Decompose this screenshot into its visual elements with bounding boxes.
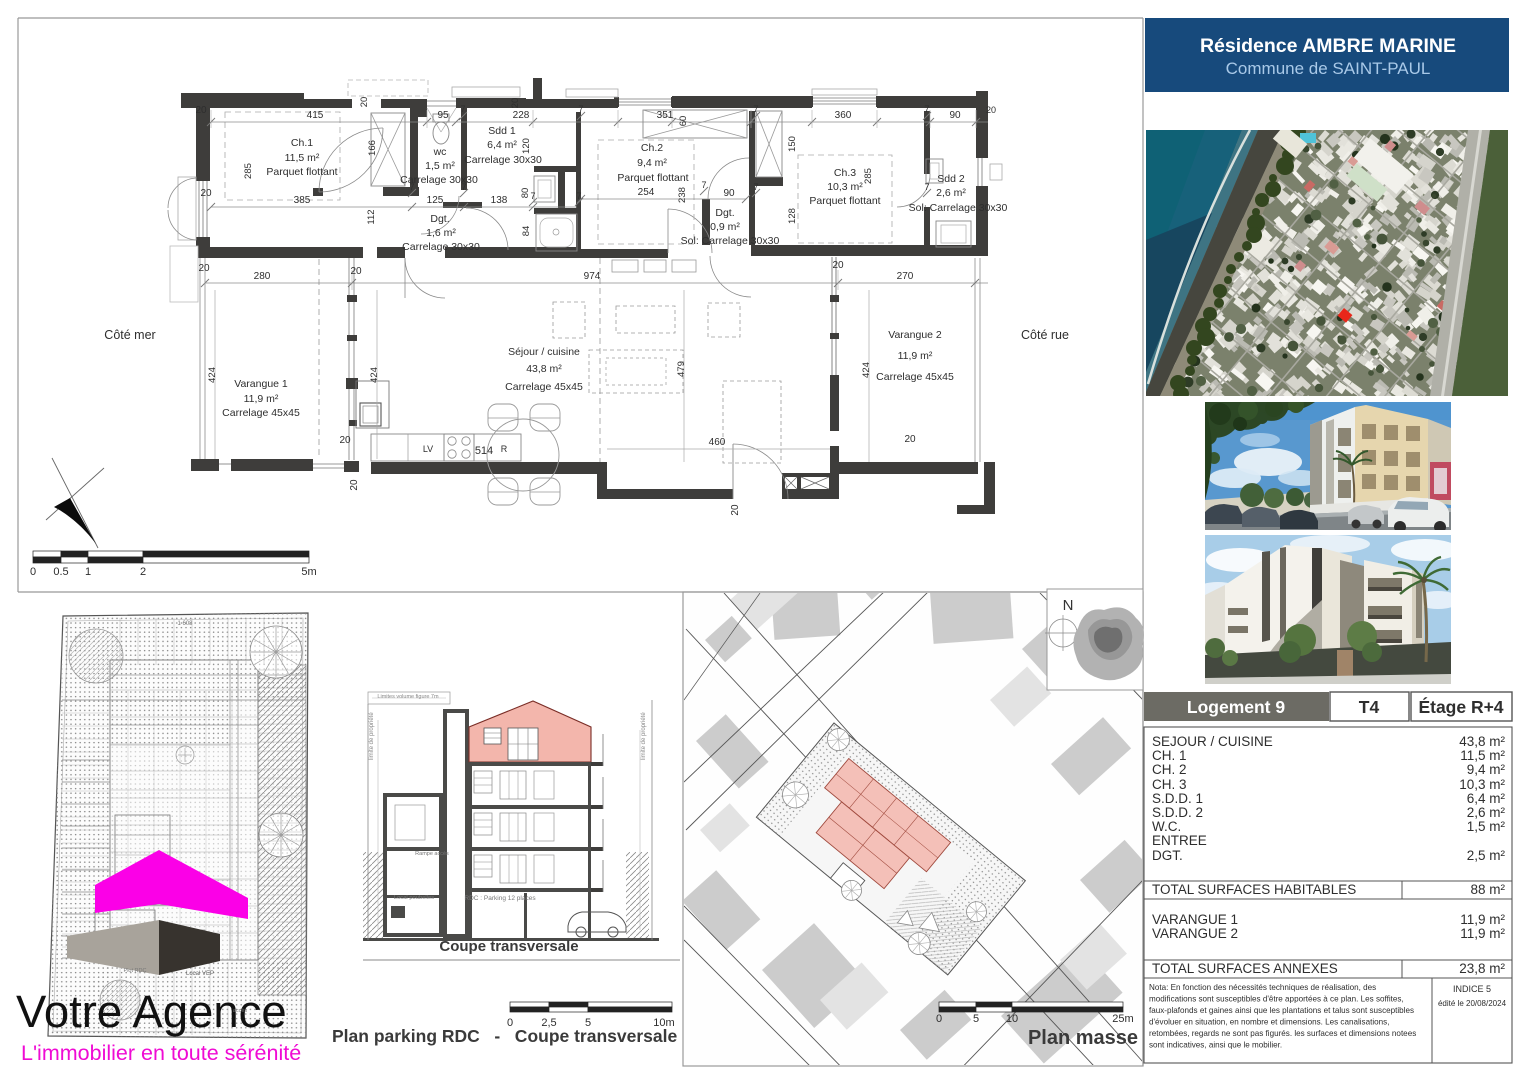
svg-text:166: 166 [367,140,378,156]
svg-text:285: 285 [243,163,254,179]
svg-text:Carrelage 45x45: Carrelage 45x45 [876,371,954,383]
svg-text:1,5 m²: 1,5 m² [1467,819,1506,834]
svg-text:285: 285 [863,168,874,184]
svg-text:238: 238 [677,187,688,203]
svg-text:125: 125 [427,195,444,206]
svg-text:20: 20 [986,105,996,115]
svg-text:Commune de SAINT-PAUL: Commune de SAINT-PAUL [1226,59,1431,78]
svg-text:43,8 m²: 43,8 m² [526,363,562,375]
svg-text:20: 20 [730,504,741,516]
svg-text:128: 128 [787,208,798,224]
svg-text:2,5 m²: 2,5 m² [1467,848,1506,863]
svg-text:DGT.: DGT. [1152,848,1183,863]
svg-text:CH. 1: CH. 1 [1152,748,1187,763]
svg-text:2,6 m²: 2,6 m² [1467,805,1506,820]
svg-text:S.D.D. 2: S.D.D. 2 [1152,805,1203,820]
svg-text:0: 0 [936,1013,942,1025]
svg-text:CH. 2: CH. 2 [1152,762,1187,777]
svg-text:Résidence AMBRE MARINE: Résidence AMBRE MARINE [1200,35,1456,57]
svg-text:7: 7 [530,191,535,201]
svg-text:6,4 m²: 6,4 m² [1467,791,1506,806]
svg-text:CH. 3: CH. 3 [1152,777,1187,792]
svg-text:10: 10 [1006,1013,1018,1025]
svg-text:1,5 m²: 1,5 m² [425,160,455,172]
svg-text:ENTREE: ENTREE [1152,833,1207,848]
svg-text:7: 7 [460,104,465,114]
svg-text:90: 90 [949,110,961,121]
svg-text:faux-plafonds et gaines ainsi: faux-plafonds et gaines ainsi que les pl… [1149,1006,1414,1015]
svg-text:150: 150 [787,136,798,152]
svg-text:T4: T4 [1359,697,1380,717]
svg-text:0.5: 0.5 [53,566,68,578]
svg-text:wc: wc [433,146,447,158]
svg-text:Nota: En fonction des néce: Nota: En fonction des nécessités techniq… [1149,983,1376,992]
svg-text:95: 95 [437,110,449,121]
svg-text:SEJOUR / CUISINE: SEJOUR / CUISINE [1152,734,1273,749]
svg-text:TOTAL SURFACES ANNEXES: TOTAL SURFACES ANNEXES [1152,961,1338,976]
svg-text:11,9 m²: 11,9 m² [1460,926,1505,941]
svg-text:accès: accès [233,1008,248,1014]
svg-text:20: 20 [349,479,360,491]
svg-text:270: 270 [897,271,914,282]
svg-text:1 608: 1 608 [177,621,193,627]
svg-text:N: N [1063,597,1074,614]
svg-text:9,4 m²: 9,4 m² [637,157,667,169]
svg-text:limite de propriété: limite de propriété [369,712,375,760]
svg-text:d'évoluer en situation, en: d'évoluer en situation, en nombre et dim… [1149,1018,1389,1027]
svg-text:10,3 m²: 10,3 m² [1459,777,1505,792]
svg-text:974: 974 [584,271,601,282]
svg-text:Ch.3: Ch.3 [834,167,856,179]
svg-text:Plan parking RDC - Coupe t: Plan parking RDC - Coupe transversale [332,1026,677,1046]
svg-text:0,9 m²: 0,9 m² [710,221,740,233]
svg-text:RDC : Parking 12 places: RDC : Parking 12 places [464,895,536,902]
svg-text:10,3 m²: 10,3 m² [827,181,863,193]
svg-text:11,9 m²: 11,9 m² [244,393,279,405]
svg-text:415: 415 [307,110,324,121]
svg-text:Étage R+4: Étage R+4 [1418,696,1503,717]
svg-text:90: 90 [723,188,735,199]
svg-text:INDICE 5: INDICE 5 [1453,984,1491,994]
svg-text:Parquet flottant: Parquet flottant [809,195,880,207]
svg-text:7: 7 [924,182,929,192]
svg-text:112: 112 [366,209,377,224]
svg-text:Plan masse: Plan masse [1028,1027,1138,1049]
svg-text:Logement 9: Logement 9 [1187,697,1285,717]
svg-text:2: 2 [140,566,146,578]
svg-text:138: 138 [491,195,508,206]
svg-text:limite de propriété: limite de propriété [641,712,647,760]
svg-text:Sol: Carrelage 30x30: Sol: Carrelage 30x30 [909,202,1008,214]
svg-text:80: 80 [520,188,531,199]
svg-text:VARANGUE 2: VARANGUE 2 [1152,926,1238,941]
svg-text:R: R [501,444,508,454]
svg-text:7: 7 [701,180,706,190]
svg-text:20: 20 [200,188,212,199]
svg-text:Parquet flottant: Parquet flottant [617,172,688,184]
svg-text:60: 60 [678,116,689,127]
svg-text:20: 20 [832,260,844,271]
svg-text:7: 7 [753,182,758,192]
svg-text:460: 460 [709,437,726,448]
svg-text:5: 5 [973,1013,979,1025]
svg-text:Dgt.: Dgt. [430,213,449,225]
svg-text:sont indicatives, ainsi que le: sont indicatives, ainsi que le mobilier. [1149,1041,1282,1050]
svg-text:424: 424 [861,362,872,378]
svg-text:S.D.D. 1: S.D.D. 1 [1152,791,1203,806]
svg-text:Local VEP: Local VEP [186,971,214,977]
svg-text:254: 254 [638,187,655,198]
svg-text:retombées, regards ne sont pas: retombées, regards ne sont pas figurés. … [1149,1029,1416,1038]
svg-text:Ch.1: Ch.1 [291,137,313,149]
svg-text:351: 351 [657,110,674,121]
svg-text:VARANGUE 1: VARANGUE 1 [1152,912,1238,927]
svg-text:1,6 m²: 1,6 m² [426,227,456,239]
svg-text:20: 20 [359,97,370,108]
svg-text:25m: 25m [1112,1013,1133,1025]
svg-text:Côté mer: Côté mer [104,328,155,342]
svg-text:6,4 m²: 6,4 m² [487,139,517,151]
svg-text:2,6 m²: 2,6 m² [936,187,966,199]
svg-text:Côté rue: Côté rue [1021,328,1069,342]
svg-text:Sdd 2: Sdd 2 [937,173,965,185]
svg-text:11,9 m²: 11,9 m² [1460,912,1505,927]
svg-text:228: 228 [513,110,530,121]
svg-text:Dgt.: Dgt. [715,207,734,219]
svg-text:20: 20 [350,266,362,277]
svg-text:20: 20 [510,98,521,109]
svg-text:20: 20 [904,434,916,445]
svg-text:479: 479 [676,361,687,377]
svg-text:Parquet flottant: Parquet flottant [266,166,337,178]
svg-text:43,8 m²: 43,8 m² [1459,734,1505,749]
svg-text:23,8 m²: 23,8 m² [1459,961,1505,976]
svg-text:Carrelage 30x30: Carrelage 30x30 [402,241,480,253]
svg-text:424: 424 [207,367,218,383]
svg-text:120: 120 [521,138,532,154]
svg-text:11,9 m²: 11,9 m² [898,350,933,362]
svg-text:L'immobilier en toute sérénité: L'immobilier en toute sérénité [21,1041,301,1065]
svg-text:Carrelage 45x45: Carrelage 45x45 [222,407,300,419]
svg-text:TOTAL SURFACES HABITABLES: TOTAL SURFACES HABITABLES [1152,882,1356,897]
svg-text:Sdd 1: Sdd 1 [488,125,516,137]
svg-text:0: 0 [30,566,36,578]
svg-text:84: 84 [521,226,532,237]
svg-text:Varangue 2: Varangue 2 [888,329,942,341]
svg-text:Carrelage 45x45: Carrelage 45x45 [505,381,583,393]
svg-text:7: 7 [576,191,581,201]
svg-text:88 m²: 88 m² [1470,882,1505,897]
svg-text:édité le 20/08/2024: édité le 20/08/2024 [1438,999,1507,1008]
svg-text:Limites volume figure 7m: Limites volume figure 7m [377,694,439,700]
svg-text:385: 385 [294,195,311,206]
svg-text:11,5 m²: 11,5 m² [285,152,320,164]
svg-text:7: 7 [578,104,583,114]
svg-text:360: 360 [835,110,852,121]
svg-text:W.C.: W.C. [1152,819,1181,834]
svg-text:Rampe accès: Rampe accès [415,851,449,857]
svg-text:LV: LV [423,444,433,454]
svg-text:Local poubelles: Local poubelles [394,895,434,901]
svg-text:7: 7 [924,104,929,114]
svg-text:11,5 m²: 11,5 m² [1460,748,1505,763]
svg-text:modifications sont susceptib: modifications sont susceptibles d'être a… [1149,995,1404,1004]
svg-text:Varangue 1: Varangue 1 [234,378,288,390]
svg-text:Coupe transversale: Coupe transversale [439,938,578,955]
svg-text:Plot RDC: Plot RDC [124,968,147,974]
svg-text:20: 20 [195,105,207,116]
svg-text:514: 514 [475,445,493,457]
svg-text:Séjour / cuisine: Séjour / cuisine [508,346,580,358]
svg-text:7: 7 [753,104,758,114]
svg-text:Carrelage 30x30: Carrelage 30x30 [400,174,478,186]
svg-text:424: 424 [369,367,380,383]
svg-text:9,4 m²: 9,4 m² [1467,762,1506,777]
svg-text:5m: 5m [301,566,316,578]
svg-text:Carrelage 30x30: Carrelage 30x30 [464,154,542,166]
svg-text:20: 20 [198,263,210,274]
svg-text:1: 1 [85,566,91,578]
svg-text:20: 20 [339,435,351,446]
svg-text:Ch.2: Ch.2 [641,142,663,154]
svg-text:280: 280 [254,271,271,282]
svg-text:Sol: Carrelage 30x30: Sol: Carrelage 30x30 [681,235,780,247]
